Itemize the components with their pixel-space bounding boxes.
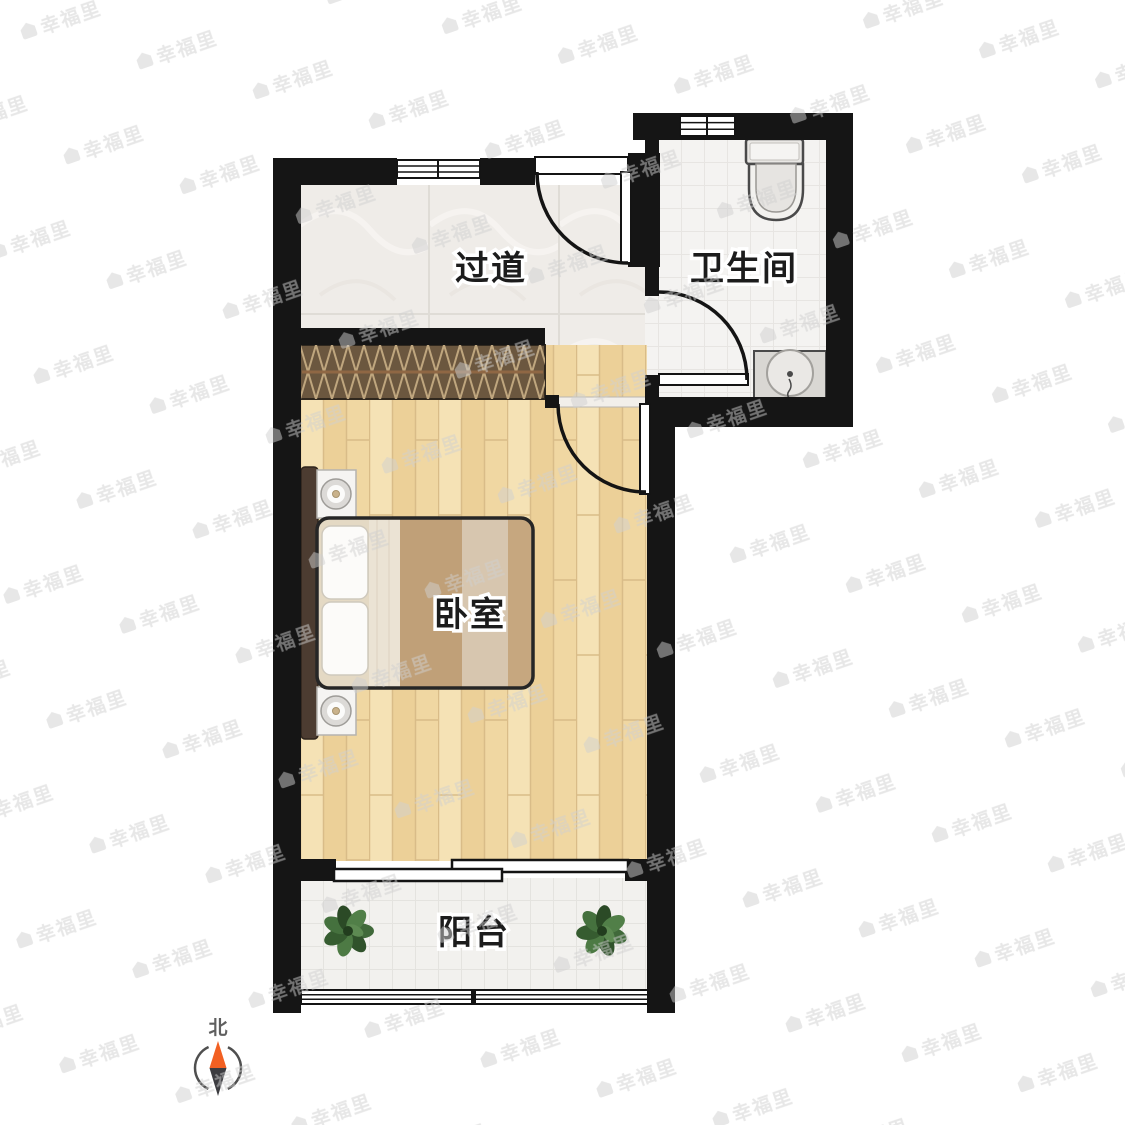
nightstand-bottom: [317, 687, 356, 735]
wall-sliding-stub-left: [273, 859, 336, 881]
wall-bathroom-left-upper: [645, 140, 659, 296]
wall-right: [647, 397, 675, 1013]
bathroom-door-leaf: [659, 374, 748, 385]
wall-left: [273, 158, 301, 1013]
wall-top-2: [480, 158, 535, 185]
balcony-window: [301, 990, 648, 1004]
pillow: [322, 526, 368, 599]
wall-bathroom-top: [633, 113, 853, 140]
bathroom-label: 卫生间: [690, 250, 798, 288]
bedroom-label: 卧室: [434, 595, 506, 634]
toilet: [746, 139, 803, 220]
bedroom-door-threshold: [549, 397, 647, 407]
bedroom-door-leaf: [640, 404, 650, 494]
hallway-label: 过道: [455, 250, 527, 288]
pillow: [322, 602, 368, 675]
duvet-stripe: [508, 518, 533, 688]
entry-door-threshold: [535, 157, 628, 174]
entry-door-leaf: [621, 172, 631, 263]
wardrobe: [300, 345, 545, 399]
compass-needle-north: [210, 1041, 227, 1068]
compass-needle-south: [210, 1068, 227, 1096]
wall-bathroom-bottom: [645, 397, 853, 427]
bathroom-door-gap-floor: [645, 296, 659, 376]
bathroom-window: [680, 116, 735, 136]
wall-bathroom-right: [826, 113, 853, 427]
duvet-fold: [369, 518, 400, 688]
sliding-panel: [334, 869, 502, 881]
wall-top-1: [273, 158, 397, 185]
compass: 北: [195, 1017, 241, 1096]
floorplan-svg: 幸福里 幸福里: [0, 0, 1125, 1125]
balcony-label: 阳台: [438, 914, 510, 952]
wall-hallway-bedroom: [300, 328, 545, 345]
north-label: 北: [208, 1017, 227, 1039]
washbasin: [754, 350, 826, 400]
floorplan-canvas: 幸福里 幸福里: [0, 0, 1125, 1125]
drain-icon: [787, 371, 793, 377]
nightstand-top: [317, 470, 356, 518]
hallway-window: [397, 160, 480, 178]
balcony-sliding-door: [334, 860, 628, 881]
